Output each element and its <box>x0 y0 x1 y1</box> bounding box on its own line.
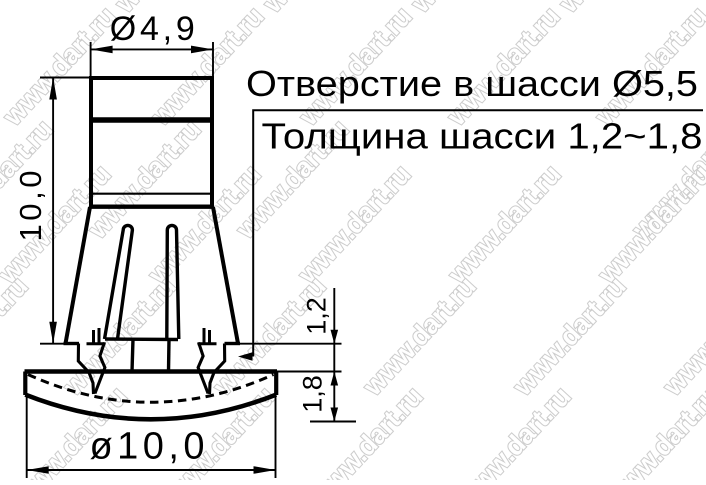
svg-text:1,2: 1,2 <box>302 297 332 335</box>
svg-text:Ø4,9: Ø4,9 <box>110 10 195 48</box>
svg-text:ø10,0: ø10,0 <box>90 426 205 468</box>
svg-text:1,8: 1,8 <box>298 375 328 413</box>
svg-text:Отверстие в шасси Ø5,5: Отверстие в шасси Ø5,5 <box>246 63 698 104</box>
svg-text:10,0: 10,0 <box>13 171 48 242</box>
svg-text:Толщина шасси 1,2~1,8: Толщина шасси 1,2~1,8 <box>262 116 703 157</box>
